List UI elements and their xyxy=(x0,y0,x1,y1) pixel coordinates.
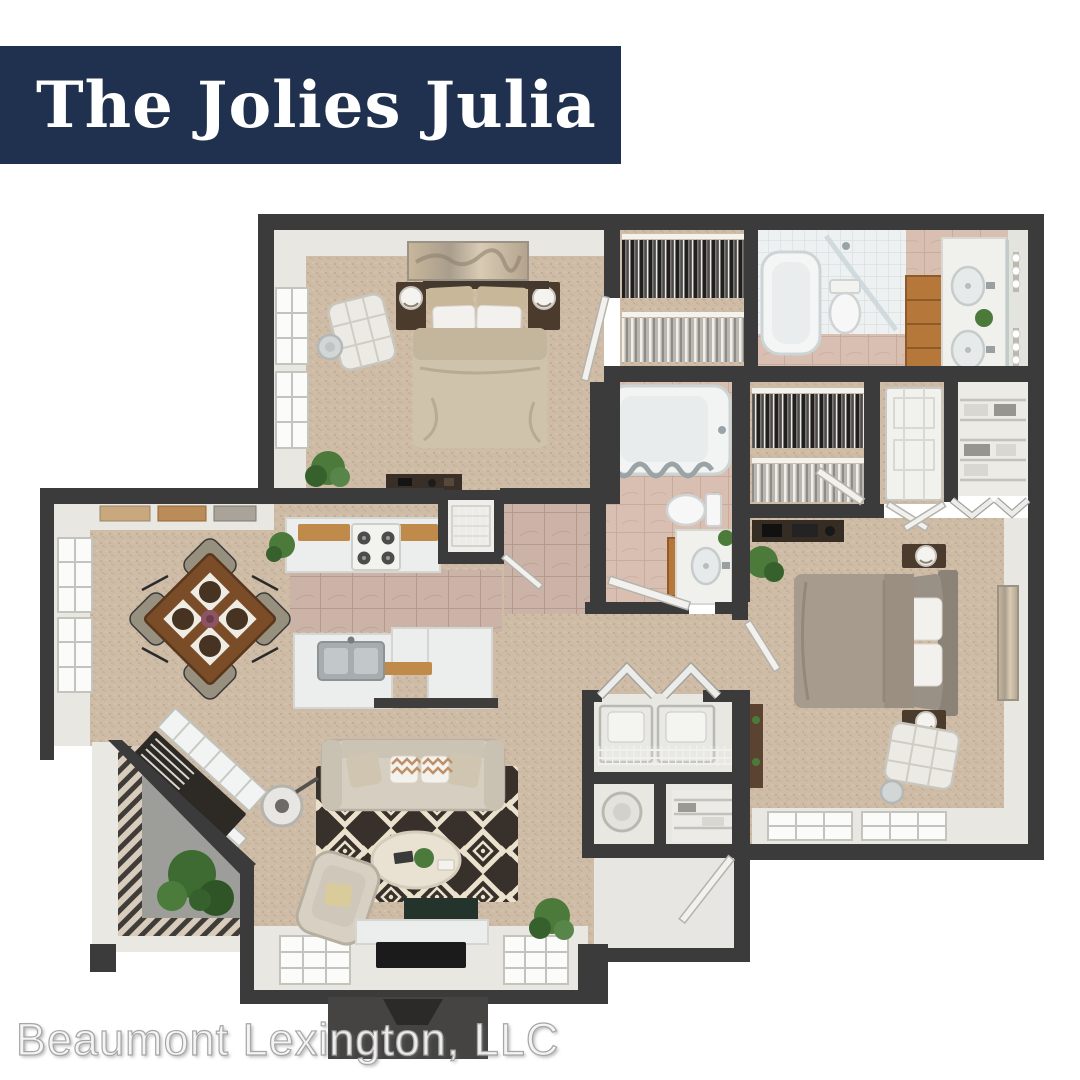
counter-wood xyxy=(398,524,438,541)
throw-pillow xyxy=(345,751,382,788)
media-accent xyxy=(404,898,478,922)
chevron-pillow xyxy=(390,756,421,783)
hanging-clothes xyxy=(622,240,744,298)
kitchen-hall-tile xyxy=(504,504,590,614)
window xyxy=(862,812,946,840)
bedroom-2-chest xyxy=(886,388,942,500)
faucet-icon xyxy=(348,637,355,644)
floor-plan-flyer: The Jolies Julia xyxy=(0,0,1080,1080)
plant-icon xyxy=(975,309,993,327)
television xyxy=(376,942,466,968)
water-heater-closet xyxy=(603,793,641,831)
patio-ledge-bottom xyxy=(116,936,258,952)
hanging-clothes xyxy=(752,464,864,502)
tub-faucet-icon xyxy=(718,426,726,434)
walk-in-closet-2 xyxy=(752,388,864,502)
patio-corner-post xyxy=(90,944,116,972)
faucet-icon xyxy=(986,346,995,353)
tv-console xyxy=(356,920,488,944)
storage-closet xyxy=(672,790,734,842)
place-setting xyxy=(199,635,221,657)
faucet-icon xyxy=(722,562,730,569)
shower-head-icon xyxy=(842,242,850,250)
toilet xyxy=(830,280,860,333)
chaise-lounge xyxy=(883,722,960,791)
double-sink xyxy=(318,637,384,681)
walk-in-closet-1 xyxy=(622,234,744,362)
coffee-table xyxy=(372,832,460,888)
entry-floor xyxy=(594,858,736,950)
chevron-pillow xyxy=(421,756,452,783)
window xyxy=(58,538,92,612)
wall-art xyxy=(408,242,528,280)
faucet-icon xyxy=(986,282,995,289)
mirror xyxy=(1006,240,1009,368)
kitchen-tile-floor xyxy=(290,570,502,632)
window xyxy=(276,288,308,364)
patio-railing-bottom xyxy=(128,918,248,936)
place-setting xyxy=(199,581,221,603)
plant-icon xyxy=(718,530,734,546)
patio-railing-left xyxy=(118,746,142,938)
place-setting xyxy=(226,608,248,630)
watermark-text: Beaumont Lexington, LLC xyxy=(16,1014,559,1066)
hanging-clothes xyxy=(622,318,744,362)
dining-wall-art xyxy=(100,506,256,521)
place-setting xyxy=(172,608,194,630)
window xyxy=(276,372,308,448)
hanging-clothes xyxy=(752,394,864,448)
patio-ledge-left xyxy=(92,742,118,948)
throw-pillow xyxy=(324,883,352,908)
sofa xyxy=(322,740,504,810)
toilet xyxy=(667,494,721,526)
window xyxy=(58,618,92,692)
wall-art xyxy=(998,586,1018,700)
stove xyxy=(352,524,400,570)
side-table xyxy=(881,781,903,803)
window xyxy=(768,812,852,840)
plant-icon xyxy=(414,848,434,868)
floor-plan-svg xyxy=(0,0,1080,1080)
counter-wood xyxy=(298,524,350,541)
window xyxy=(504,936,568,984)
floor-plan-rendering xyxy=(0,0,1080,1080)
